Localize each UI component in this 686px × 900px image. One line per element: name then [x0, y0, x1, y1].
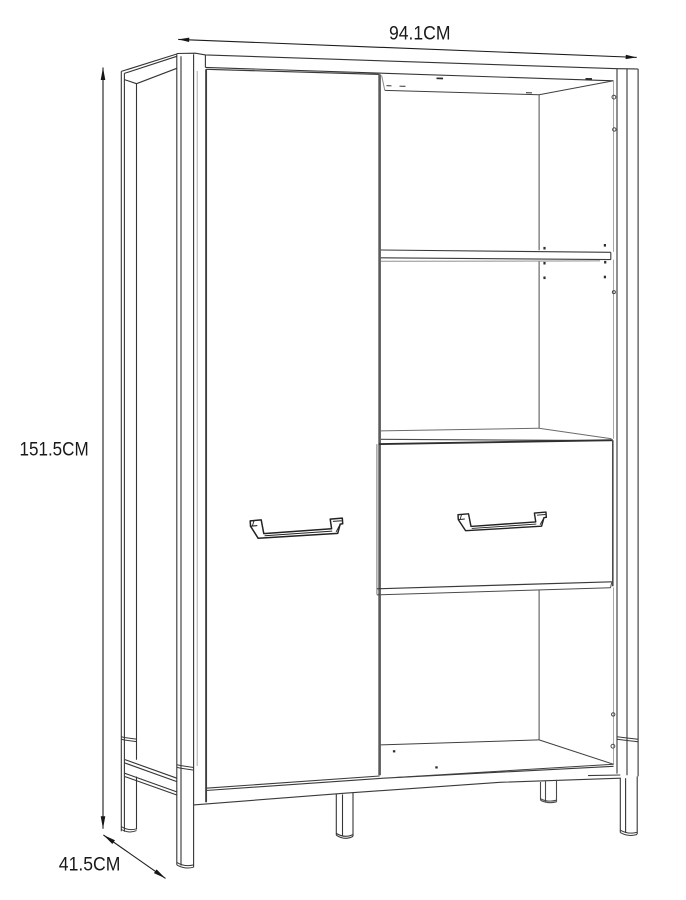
svg-text:41.5CM: 41.5CM	[59, 855, 121, 876]
svg-text:94.1CM: 94.1CM	[389, 24, 451, 45]
svg-text:151.5CM: 151.5CM	[20, 440, 89, 461]
